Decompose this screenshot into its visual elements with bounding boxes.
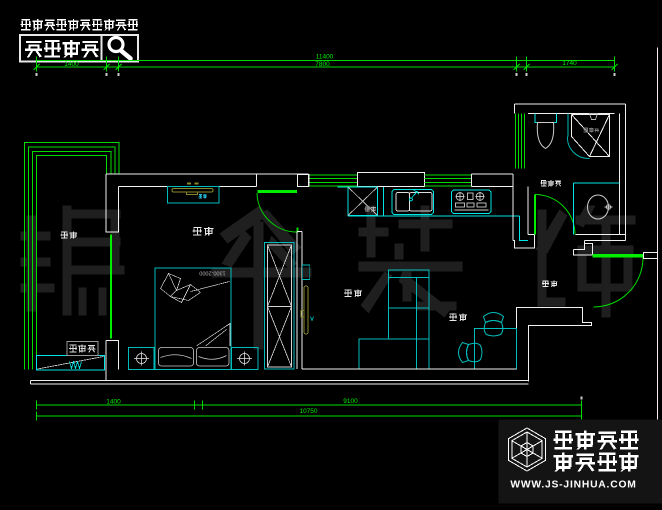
- svg-text:1400: 1400: [64, 61, 79, 68]
- svg-text:7800: 7800: [315, 61, 330, 68]
- svg-text:1300-2000: 1300-2000: [199, 270, 225, 276]
- svg-text:11400: 11400: [316, 54, 334, 61]
- svg-text:1400: 1400: [106, 399, 121, 406]
- svg-text:WWW.JS-JINHUA.COM: WWW.JS-JINHUA.COM: [510, 480, 636, 491]
- svg-text:10750: 10750: [299, 408, 317, 415]
- svg-text:9100: 9100: [343, 398, 358, 405]
- svg-text:1740: 1740: [562, 60, 577, 67]
